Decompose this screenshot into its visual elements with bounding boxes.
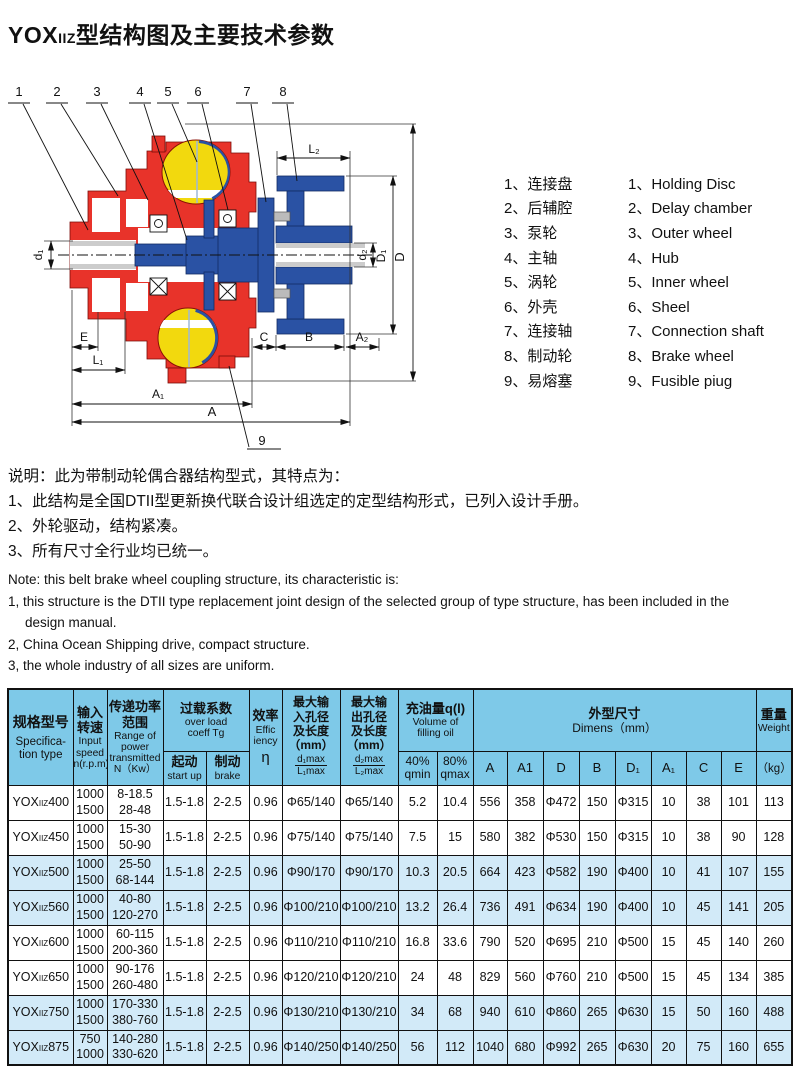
cell-oil-80: 112 xyxy=(437,1030,473,1065)
cell-brake: 2-2.5 xyxy=(206,820,249,855)
cell-A: 1040 xyxy=(473,1030,507,1065)
cell-D: Φ472 xyxy=(543,785,579,820)
note-line: 2, China Ocean Shipping drive, compact s… xyxy=(8,634,796,656)
part-number-1: 1 xyxy=(15,84,22,99)
legend-zh: 7、连接轴 xyxy=(504,320,628,341)
cell-model: YOXIIZ750 xyxy=(8,995,73,1030)
cell-oil-40: 13.2 xyxy=(398,890,437,925)
cell-D1: Φ500 xyxy=(615,960,651,995)
legend: 1、连接盘1、Holding Disc2、后辅腔2、Delay chamber3… xyxy=(504,171,796,392)
col-dimensions: 外型尺寸 Dimens（mm） xyxy=(473,689,756,751)
cell-C: 38 xyxy=(686,785,721,820)
cell-model: YOXIIZ560 xyxy=(8,890,73,925)
cell-D: Φ860 xyxy=(543,995,579,1030)
legend-en: 4、Hub xyxy=(628,247,796,268)
dim-D: D xyxy=(392,252,407,261)
cell-max-output: Φ140/250 xyxy=(340,1030,398,1065)
cell-oil-80: 10.4 xyxy=(437,785,473,820)
cell-D1: Φ500 xyxy=(615,925,651,960)
note-line: 1, this structure is the DTII type repla… xyxy=(8,591,796,613)
cell-E: 101 xyxy=(721,785,756,820)
legend-en: 1、Holding Disc xyxy=(628,173,796,194)
cell-A1: 491 xyxy=(507,890,543,925)
cell-power: 170-330380-760 xyxy=(107,995,163,1030)
cell-E: 141 xyxy=(721,890,756,925)
cell-speed: 10001500 xyxy=(73,960,107,995)
cell-oil-40: 34 xyxy=(398,995,437,1030)
cell-A1-sub: 10 xyxy=(651,785,686,820)
cell-D1: Φ315 xyxy=(615,785,651,820)
legend-item: 3、泵轮3、Outer wheel xyxy=(504,220,796,245)
cell-D: Φ634 xyxy=(543,890,579,925)
col-dim-A1-sub: A₁ xyxy=(651,751,686,785)
notes-en: Note: this belt brake wheel coupling str… xyxy=(8,569,796,677)
legend-zh: 2、后辅腔 xyxy=(504,197,628,218)
note-line: 说明：此为带制动轮偶合器结构型式，其特点为： xyxy=(8,464,796,489)
col-weight-unit: （kg） xyxy=(756,751,792,785)
cell-oil-40: 5.2 xyxy=(398,785,437,820)
cell-D1: Φ400 xyxy=(615,890,651,925)
cell-E: 134 xyxy=(721,960,756,995)
legend-zh: 5、涡轮 xyxy=(504,271,628,292)
cell-efficiency: 0.96 xyxy=(249,995,282,1030)
cell-weight: 260 xyxy=(756,925,792,960)
legend-item: 4、主轴4、Hub xyxy=(504,245,796,270)
notes: 说明：此为带制动轮偶合器结构型式，其特点为：1、此结构是全国DTII型更新换代联… xyxy=(8,464,796,677)
cell-A1-sub: 15 xyxy=(651,925,686,960)
cell-D: Φ992 xyxy=(543,1030,579,1065)
cell-startup: 1.5-1.8 xyxy=(163,960,206,995)
cell-power: 25-5068-144 xyxy=(107,855,163,890)
cell-speed: 10001500 xyxy=(73,995,107,1030)
cell-B: 150 xyxy=(579,820,615,855)
col-dim-D1: D₁ xyxy=(615,751,651,785)
cell-brake: 2-2.5 xyxy=(206,995,249,1030)
cell-model: YOXIIZ450 xyxy=(8,820,73,855)
legend-zh: 3、泵轮 xyxy=(504,222,628,243)
title-rest: 型结构图及主要技术参数 xyxy=(76,22,335,48)
cell-speed: 10001500 xyxy=(73,890,107,925)
cell-max-output: Φ100/210 xyxy=(340,890,398,925)
cell-E: 140 xyxy=(721,925,756,960)
cell-max-input: Φ75/140 xyxy=(282,820,340,855)
table-row: YOXIIZ8757501000140-280330-6201.5-1.82-2… xyxy=(8,1030,792,1065)
cell-B: 190 xyxy=(579,855,615,890)
cell-efficiency: 0.96 xyxy=(249,960,282,995)
col-dim-B: B xyxy=(579,751,615,785)
legend-item: 1、连接盘1、Holding Disc xyxy=(504,171,796,196)
cell-weight: 155 xyxy=(756,855,792,890)
cell-model: YOXIIZ875 xyxy=(8,1030,73,1065)
legend-item: 2、后辅腔2、Delay chamber xyxy=(504,196,796,221)
cell-max-input: Φ90/170 xyxy=(282,855,340,890)
cell-oil-80: 26.4 xyxy=(437,890,473,925)
cell-power: 60-115200-360 xyxy=(107,925,163,960)
cell-A1: 382 xyxy=(507,820,543,855)
cell-D1: Φ400 xyxy=(615,855,651,890)
note-line: 3, the whole industry of all sizes are u… xyxy=(8,655,796,677)
cell-model: YOXIIZ400 xyxy=(8,785,73,820)
cell-model: YOXIIZ600 xyxy=(8,925,73,960)
dim-L1: L₁ xyxy=(93,353,104,367)
cell-A1: 423 xyxy=(507,855,543,890)
cell-D1: Φ630 xyxy=(615,1030,651,1065)
part-number-3: 3 xyxy=(93,84,100,99)
cell-brake: 2-2.5 xyxy=(206,1030,249,1065)
legend-en: 7、Connection shaft xyxy=(628,320,796,341)
title-subscript: IIZ xyxy=(58,30,76,46)
cell-efficiency: 0.96 xyxy=(249,820,282,855)
note-line: 1、此结构是全国DTII型更新换代联合设计组选定的定型结构形式，已列入设计手册。 xyxy=(8,489,796,514)
part-number-2: 2 xyxy=(53,84,60,99)
cell-oil-40: 56 xyxy=(398,1030,437,1065)
cell-A: 556 xyxy=(473,785,507,820)
cell-speed: 10001500 xyxy=(73,820,107,855)
col-power: 传递功率 范围 Range of power transmitted N（Kw） xyxy=(107,689,163,785)
dim-L2: L₂ xyxy=(308,142,320,156)
cell-C: 45 xyxy=(686,925,721,960)
cell-A: 664 xyxy=(473,855,507,890)
cell-D1: Φ315 xyxy=(615,820,651,855)
table-row: YOXIIZ4501000150015-3050-901.5-1.82-2.50… xyxy=(8,820,792,855)
cell-E: 90 xyxy=(721,820,756,855)
col-dim-C: C xyxy=(686,751,721,785)
cell-brake: 2-2.5 xyxy=(206,925,249,960)
cell-E: 160 xyxy=(721,995,756,1030)
spec-table: 规格型号 Specifica- tion type 输入 转速 Input sp… xyxy=(7,688,793,1066)
legend-zh: 9、易熔塞 xyxy=(504,370,628,391)
bottom-foot xyxy=(168,368,186,383)
legend-en: 6、Sheel xyxy=(628,296,796,317)
coupling-diagram: L₂ d₁ d₂ D₁ D E L₁ C B A₂ A₁ A 1 xyxy=(0,58,470,460)
cell-A: 580 xyxy=(473,820,507,855)
part-number-5: 5 xyxy=(164,84,171,99)
cell-power: 8-18.528-48 xyxy=(107,785,163,820)
col-oil-volume: 充油量q(l) Volume of filling oil xyxy=(398,689,473,751)
cell-A1: 358 xyxy=(507,785,543,820)
cell-max-input: Φ130/210 xyxy=(282,995,340,1030)
part-number-7: 7 xyxy=(243,84,250,99)
table-row: YOXIIZ400100015008-18.528-481.5-1.82-2.5… xyxy=(8,785,792,820)
dim-B: B xyxy=(305,330,313,344)
cell-max-input: Φ120/210 xyxy=(282,960,340,995)
cell-brake: 2-2.5 xyxy=(206,855,249,890)
cell-oil-40: 10.3 xyxy=(398,855,437,890)
note-line: Note: this belt brake wheel coupling str… xyxy=(8,569,796,591)
cell-speed: 7501000 xyxy=(73,1030,107,1065)
cell-weight: 655 xyxy=(756,1030,792,1065)
col-max-output: 最大输 出孔径 及长度 （mm） d₂maxL₂max xyxy=(340,689,398,785)
brake-wheel-flange-top xyxy=(277,176,344,191)
cell-D: Φ695 xyxy=(543,925,579,960)
cell-E: 107 xyxy=(721,855,756,890)
legend-en: 3、Outer wheel xyxy=(628,222,796,243)
bore-hatch xyxy=(70,241,136,246)
cell-C: 45 xyxy=(686,960,721,995)
part-number-6: 6 xyxy=(194,84,201,99)
col-dim-A1: A1 xyxy=(507,751,543,785)
dim-C: C xyxy=(260,330,269,344)
cell-A1-sub: 10 xyxy=(651,855,686,890)
cell-oil-80: 33.6 xyxy=(437,925,473,960)
cell-speed: 10001500 xyxy=(73,785,107,820)
cell-brake: 2-2.5 xyxy=(206,785,249,820)
cell-A1: 520 xyxy=(507,925,543,960)
cell-max-input: Φ140/250 xyxy=(282,1030,340,1065)
eta-symbol: η xyxy=(250,749,282,766)
cell-A: 940 xyxy=(473,995,507,1030)
cell-efficiency: 0.96 xyxy=(249,785,282,820)
cell-C: 75 xyxy=(686,1030,721,1065)
legend-item: 5、涡轮5、Inner wheel xyxy=(504,269,796,294)
cell-efficiency: 0.96 xyxy=(249,890,282,925)
cell-model: YOXIIZ500 xyxy=(8,855,73,890)
key-block xyxy=(274,212,290,221)
col-oil-40: 40% qmin xyxy=(398,751,437,785)
dim-d1: d₁ xyxy=(31,250,45,261)
dim-A: A xyxy=(208,404,217,419)
cell-B: 210 xyxy=(579,960,615,995)
cell-A1-sub: 10 xyxy=(651,820,686,855)
part-number-9: 9 xyxy=(258,433,265,448)
cell-C: 50 xyxy=(686,995,721,1030)
legend-zh: 1、连接盘 xyxy=(504,173,628,194)
dim-D1: D₁ xyxy=(374,250,388,263)
cell-power: 90-176260-480 xyxy=(107,960,163,995)
brake-wheel-hub xyxy=(276,226,352,243)
cell-max-input: Φ65/140 xyxy=(282,785,340,820)
cell-A1-sub: 10 xyxy=(651,890,686,925)
cell-startup: 1.5-1.8 xyxy=(163,890,206,925)
cell-startup: 1.5-1.8 xyxy=(163,785,206,820)
notes-zh: 说明：此为带制动轮偶合器结构型式，其特点为：1、此结构是全国DTII型更新换代联… xyxy=(8,464,796,564)
cell-oil-40: 7.5 xyxy=(398,820,437,855)
cell-weight: 128 xyxy=(756,820,792,855)
cell-A: 736 xyxy=(473,890,507,925)
note-line: 2、外轮驱动，结构紧凑。 xyxy=(8,514,796,539)
cell-C: 45 xyxy=(686,890,721,925)
legend-zh: 6、外壳 xyxy=(504,296,628,317)
cell-efficiency: 0.96 xyxy=(249,855,282,890)
dim-A1: A₁ xyxy=(152,387,164,401)
cell-A1-sub: 20 xyxy=(651,1030,686,1065)
legend-en: 8、Brake wheel xyxy=(628,345,796,366)
cell-oil-80: 68 xyxy=(437,995,473,1030)
col-dim-E: E xyxy=(721,751,756,785)
col-brake: 制动brake xyxy=(206,751,249,785)
legend-item: 9、易熔塞9、Fusible piug xyxy=(504,368,796,393)
cell-power: 40-80120-270 xyxy=(107,890,163,925)
cell-startup: 1.5-1.8 xyxy=(163,995,206,1030)
cell-A: 829 xyxy=(473,960,507,995)
cell-B: 150 xyxy=(579,785,615,820)
cell-E: 160 xyxy=(721,1030,756,1065)
col-weight: 重量 Weight xyxy=(756,689,792,751)
legend-en: 9、Fusible piug xyxy=(628,370,796,391)
cell-speed: 10001500 xyxy=(73,925,107,960)
cell-oil-80: 15 xyxy=(437,820,473,855)
table-row: YOXIIZ5601000150040-80120-2701.5-1.82-2.… xyxy=(8,890,792,925)
table-row: YOXIIZ75010001500170-330380-7601.5-1.82-… xyxy=(8,995,792,1030)
cell-weight: 488 xyxy=(756,995,792,1030)
cell-D1: Φ630 xyxy=(615,995,651,1030)
dim-d2: d₂ xyxy=(355,249,369,261)
legend-zh: 4、主轴 xyxy=(504,247,628,268)
cell-B: 190 xyxy=(579,890,615,925)
part-number-8: 8 xyxy=(279,84,286,99)
note-line: design manual. xyxy=(8,612,796,634)
cell-startup: 1.5-1.8 xyxy=(163,925,206,960)
table-row: YOXIIZ6501000150090-176260-4801.5-1.82-2… xyxy=(8,960,792,995)
legend-item: 8、制动轮8、Brake wheel xyxy=(504,343,796,368)
cell-C: 38 xyxy=(686,820,721,855)
key-block xyxy=(274,289,290,298)
cell-model: YOXIIZ650 xyxy=(8,960,73,995)
cell-startup: 1.5-1.8 xyxy=(163,855,206,890)
cell-max-output: Φ110/210 xyxy=(340,925,398,960)
cell-startup: 1.5-1.8 xyxy=(163,820,206,855)
cell-A: 790 xyxy=(473,925,507,960)
cell-oil-80: 48 xyxy=(437,960,473,995)
cell-power: 15-3050-90 xyxy=(107,820,163,855)
bore-hatch xyxy=(70,264,136,269)
legend-item: 6、外壳6、Sheel xyxy=(504,294,796,319)
col-dim-A: A xyxy=(473,751,507,785)
cell-B: 265 xyxy=(579,1030,615,1065)
catalog-page: YOXIIZ型结构图及主要技术参数 xyxy=(0,0,800,1072)
cell-weight: 113 xyxy=(756,785,792,820)
title-prefix: YOX xyxy=(8,22,58,48)
cell-A1: 560 xyxy=(507,960,543,995)
cell-speed: 10001500 xyxy=(73,855,107,890)
cell-max-input: Φ100/210 xyxy=(282,890,340,925)
col-dim-D: D xyxy=(543,751,579,785)
cell-oil-40: 24 xyxy=(398,960,437,995)
cell-A1: 680 xyxy=(507,1030,543,1065)
col-startup: 起动start up xyxy=(163,751,206,785)
cell-A1-sub: 15 xyxy=(651,960,686,995)
cell-max-output: Φ120/210 xyxy=(340,960,398,995)
cell-max-output: Φ75/140 xyxy=(340,820,398,855)
cell-D: Φ760 xyxy=(543,960,579,995)
cell-A1: 610 xyxy=(507,995,543,1030)
cell-weight: 385 xyxy=(756,960,792,995)
dim-A2: A₂ xyxy=(356,330,369,344)
table-row: YOXIIZ6001000150060-115200-3601.5-1.82-2… xyxy=(8,925,792,960)
col-spec: 规格型号 Specifica- tion type xyxy=(8,689,73,785)
table-row: YOXIIZ5001000150025-5068-1441.5-1.82-2.5… xyxy=(8,855,792,890)
cell-C: 41 xyxy=(686,855,721,890)
col-speed: 输入 转速 Input speed n(r.p.m) xyxy=(73,689,107,785)
legend-en: 2、Delay chamber xyxy=(628,197,796,218)
cell-startup: 1.5-1.8 xyxy=(163,1030,206,1065)
cell-efficiency: 0.96 xyxy=(249,1030,282,1065)
cell-max-output: Φ90/170 xyxy=(340,855,398,890)
legend-zh: 8、制动轮 xyxy=(504,345,628,366)
cell-B: 265 xyxy=(579,995,615,1030)
page-title: YOXIIZ型结构图及主要技术参数 xyxy=(8,16,334,50)
cell-max-output: Φ130/210 xyxy=(340,995,398,1030)
cell-D: Φ582 xyxy=(543,855,579,890)
cell-oil-80: 20.5 xyxy=(437,855,473,890)
col-overload: 过载系数 over load coeff Tg xyxy=(163,689,249,751)
cell-D: Φ530 xyxy=(543,820,579,855)
cell-oil-40: 16.8 xyxy=(398,925,437,960)
note-line: 3、所有尺寸全行业均已统一。 xyxy=(8,539,796,564)
col-efficiency: 效率 Effic iency η xyxy=(249,689,282,785)
cell-brake: 2-2.5 xyxy=(206,960,249,995)
cell-weight: 205 xyxy=(756,890,792,925)
legend-en: 5、Inner wheel xyxy=(628,271,796,292)
cell-A1-sub: 15 xyxy=(651,995,686,1030)
col-oil-80: 80% qmax xyxy=(437,751,473,785)
cell-power: 140-280330-620 xyxy=(107,1030,163,1065)
part-number-4: 4 xyxy=(136,84,143,99)
legend-item: 7、连接轴7、Connection shaft xyxy=(504,319,796,344)
cell-brake: 2-2.5 xyxy=(206,890,249,925)
cell-max-input: Φ110/210 xyxy=(282,925,340,960)
fusible-plug xyxy=(219,356,235,368)
spec-table-body: YOXIIZ400100015008-18.528-481.5-1.82-2.5… xyxy=(8,785,792,1065)
cell-max-output: Φ65/140 xyxy=(340,785,398,820)
cell-efficiency: 0.96 xyxy=(249,925,282,960)
dim-E: E xyxy=(80,330,88,344)
cell-B: 210 xyxy=(579,925,615,960)
col-max-input: 最大输 入孔径 及长度 （mm） d₁maxL₁max xyxy=(282,689,340,785)
